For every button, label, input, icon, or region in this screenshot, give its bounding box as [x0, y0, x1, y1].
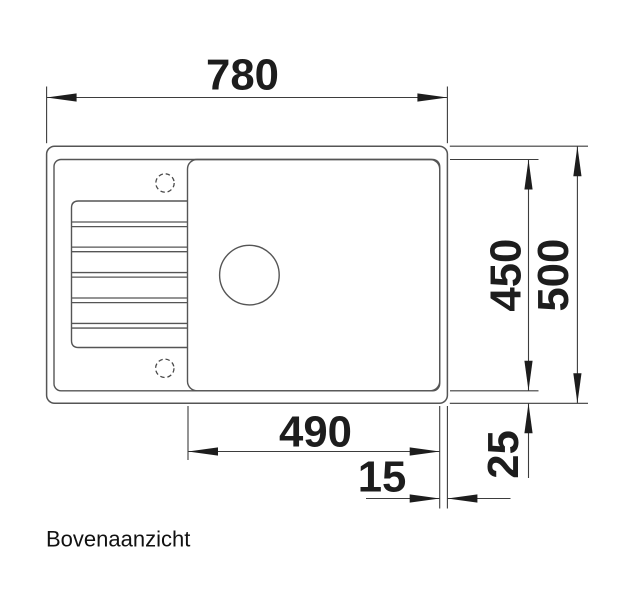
svg-text:490: 490 — [279, 408, 352, 457]
svg-text:15: 15 — [358, 453, 407, 502]
svg-text:25: 25 — [479, 430, 528, 479]
svg-text:500: 500 — [529, 239, 578, 312]
svg-text:Bovenaanzicht: Bovenaanzicht — [46, 527, 190, 552]
svg-text:450: 450 — [482, 239, 531, 312]
svg-text:780: 780 — [206, 51, 279, 100]
